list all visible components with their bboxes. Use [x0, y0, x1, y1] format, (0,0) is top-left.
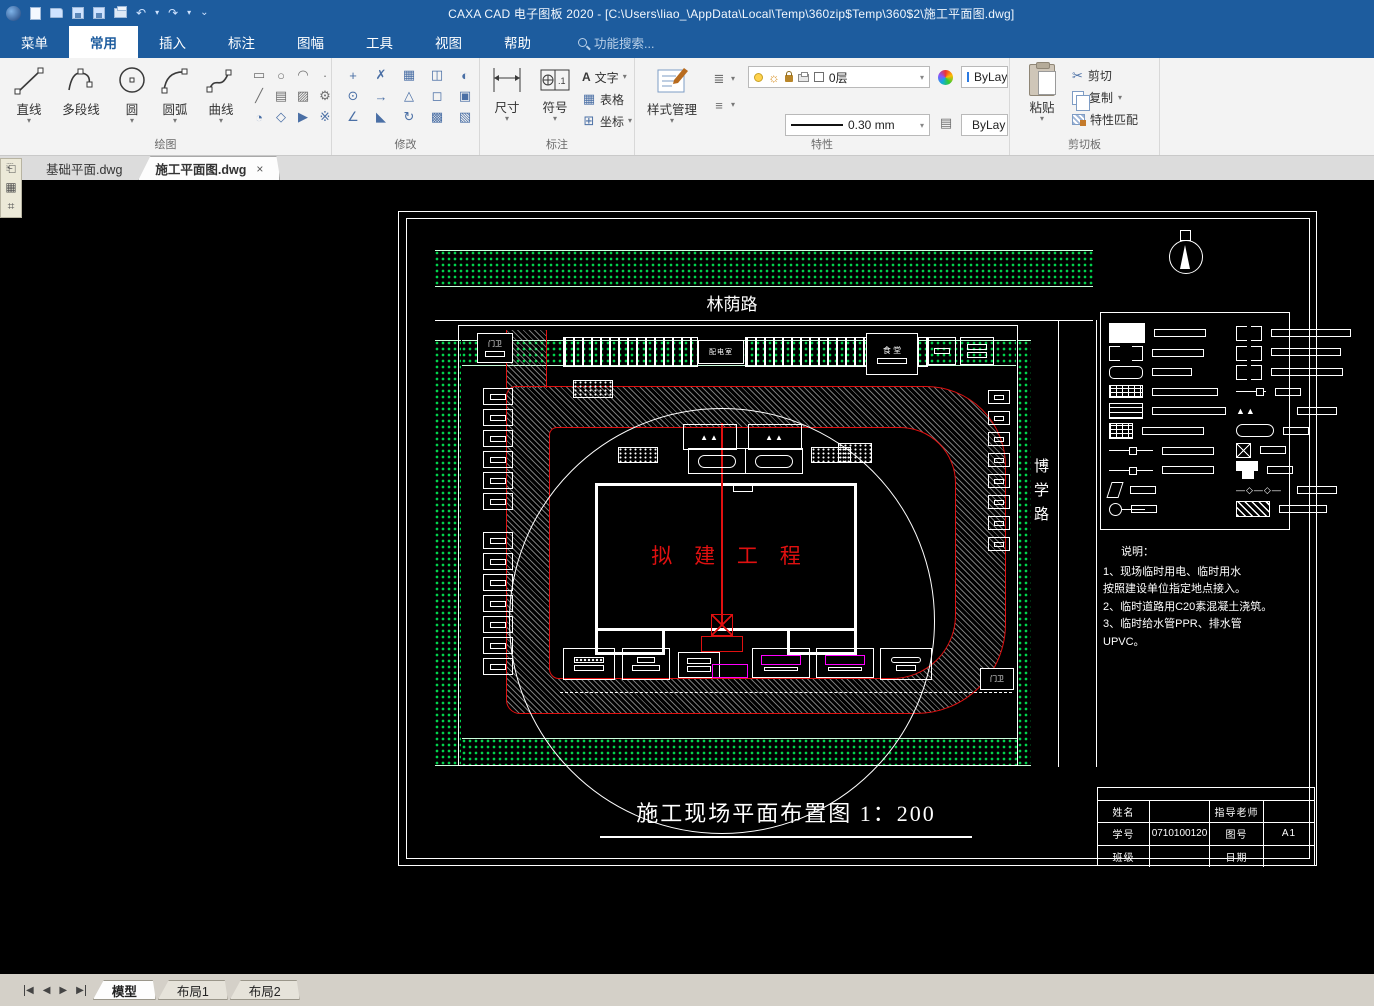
redo-icon[interactable]: ↷: [168, 7, 178, 19]
crane-base: [711, 614, 733, 636]
power-room-box: 配电室: [698, 340, 744, 364]
tb-sid-label: 学号: [1098, 823, 1150, 845]
color-picker-icon[interactable]: [938, 70, 953, 85]
quick-access-toolbar: ↶ ▾ ↷ ▾ ⌄: [0, 6, 209, 21]
aggregate-pile: [618, 447, 658, 463]
east-temp-boxes: [988, 390, 1010, 558]
menu-tab-tufu[interactable]: 图幅: [276, 26, 345, 58]
arc-tool-button[interactable]: 圆弧▾: [152, 64, 198, 124]
modify-tool-icon[interactable]: ↻: [398, 108, 420, 126]
draw-tool-icon[interactable]: ╱: [248, 87, 270, 105]
bylayer-color-icon: [967, 72, 969, 82]
hopper-box: ▲▲: [748, 424, 802, 450]
layer-combo[interactable]: ☼ 0层 ▾: [748, 66, 930, 88]
customize-toolbar-icon[interactable]: ⌄: [200, 8, 208, 18]
group-label-clipboard: 剪切板: [1010, 136, 1159, 152]
notes-title: 说明：: [1103, 544, 1313, 562]
tb-sid-value: 0710100120: [1150, 823, 1210, 845]
save-icon[interactable]: [72, 7, 84, 19]
note-line: 3、临时给水管PPR、排水管: [1103, 616, 1313, 634]
modify-tool-icon[interactable]: ▧: [454, 108, 476, 126]
svg-text:.1: .1: [558, 76, 566, 86]
temp-room: [483, 595, 513, 612]
layer-on-icon: [754, 73, 763, 82]
draw-tool-icon[interactable]: ◠: [292, 66, 314, 84]
line-tool-button[interactable]: 直线▾: [2, 64, 56, 124]
drawing-canvas[interactable]: 林荫路 博学路 拟 建 工 程 配电室 食 堂 门卫 ▲▲ ▲▲: [0, 180, 1374, 974]
cut-icon: ✂: [1072, 68, 1083, 84]
spline-tool-button[interactable]: 曲线▾: [198, 64, 244, 124]
polyline-tool-button[interactable]: 多段线: [50, 64, 112, 118]
legend-column-left: [1109, 323, 1226, 519]
coordinate-tool-button[interactable]: ⊞坐标▾: [582, 112, 632, 130]
temp-room: [483, 532, 513, 549]
temp-room: [483, 409, 513, 426]
ribbon-group-clipboard: 粘贴▾ ✂剪切 复制▾ 特性匹配 剪切板: [1010, 58, 1160, 155]
draw-tool-icon[interactable]: ▭: [248, 66, 270, 84]
legend-column-right: ▲▲ —◇—◇—: [1236, 323, 1351, 519]
canteen-box: 食 堂: [866, 333, 918, 375]
tb-name-label: 姓名: [1098, 801, 1150, 823]
copy-button[interactable]: 复制▾: [1072, 88, 1138, 107]
tb-advisor-label: 指导老师: [1210, 801, 1264, 823]
title-bar: ↶ ▾ ↷ ▾ ⌄ CAXA CAD 电子图板 2020 - [C:\Users…: [0, 0, 1374, 26]
note-line: 按照建设单位指定地点接入。: [1103, 581, 1313, 599]
modify-tool-icon[interactable]: ◐: [454, 66, 476, 84]
tb-fig-value: A1: [1264, 823, 1314, 845]
layer-sun-icon: ☼: [768, 70, 780, 85]
draw-tool-icon[interactable]: ▤: [270, 87, 292, 105]
tb-date-value: [1264, 846, 1314, 867]
circle-tool-button[interactable]: 圆▾: [112, 64, 152, 124]
draw-tool-icon[interactable]: ▶: [292, 108, 314, 126]
draw-tool-icon[interactable]: ◔: [248, 108, 270, 126]
ribbon: 直线▾ 多段线 圆▾ 圆弧▾ 曲线▾ ▭ ○ ◠ · ╱ ▤ ▨ ⚙ ◔ ◇: [0, 58, 1374, 156]
layer-lock-icon: [785, 75, 793, 82]
tb-class-value: [1150, 846, 1210, 867]
modify-tool-icon[interactable]: ▩: [426, 108, 448, 126]
tb-name-value: [1150, 801, 1210, 823]
close-tab-icon[interactable]: ×: [256, 162, 263, 176]
aggregate-pile: [838, 443, 872, 463]
sheet-last-icon[interactable]: ▶: [76, 985, 86, 996]
linestyle-tool-icon[interactable]: ≡: [711, 96, 727, 114]
group-label-annotate: 标注: [480, 136, 634, 152]
temp-room: [483, 493, 513, 510]
drawing-caption: 施工现场平面布置图 1：200: [600, 796, 972, 838]
save-as-icon[interactable]: [93, 7, 105, 19]
paste-button[interactable]: 粘贴▾: [1018, 64, 1066, 122]
modify-tool-icon[interactable]: ◻: [426, 87, 448, 105]
modify-tool-icon[interactable]: +: [342, 66, 364, 84]
road-label-right: 博学路: [1030, 458, 1051, 530]
facility-box: [928, 337, 956, 365]
linewidth-combo[interactable]: 0.30 mm ▾: [785, 114, 930, 136]
building-detail-rect: [733, 485, 753, 492]
status-bar: ◀ ◀ ▶ ▶ 模型 布局1 布局2: [0, 974, 1374, 1006]
east-road-line-1: [1058, 320, 1059, 767]
match-properties-button[interactable]: 特性匹配: [1072, 110, 1138, 129]
guard-house-bottom: 门卫: [980, 668, 1014, 690]
modify-tool-icon[interactable]: ⊙: [342, 87, 364, 105]
aggregate-pile: [573, 380, 613, 398]
notes-block: 说明： 1、现场临时用电、临时用水 按照建设单位指定地点接入。 2、临时道路用C…: [1103, 544, 1313, 651]
green-belt-east: [1018, 340, 1031, 766]
window-title: CAXA CAD 电子图板 2020 - [C:\Users\liao_\App…: [209, 5, 1254, 22]
west-temp-rooms: [483, 388, 513, 679]
green-belt-top: [435, 250, 1093, 287]
sheet-first-icon[interactable]: ◀: [24, 985, 34, 996]
temp-room: [483, 637, 513, 654]
temp-room: [483, 451, 513, 468]
menu-bar: 菜单 常用 插入 标注 图幅 工具 视图 帮助 功能搜索...: [0, 26, 1374, 58]
sheet-tab-layout2[interactable]: 布局2: [230, 980, 300, 1000]
north-arrow: [1166, 230, 1206, 282]
symbol-button[interactable]: .1 符号▾: [532, 64, 578, 122]
temp-room: [483, 430, 513, 447]
temp-box: [988, 390, 1010, 404]
search-icon: [578, 38, 587, 47]
modify-tool-icon[interactable]: ◫: [426, 66, 448, 84]
road-label-top: 林荫路: [662, 290, 802, 315]
modify-tool-icon[interactable]: △: [398, 87, 420, 105]
temp-box: [988, 453, 1010, 467]
color-bylayer-combo[interactable]: ByLayer: [961, 66, 1008, 88]
facility-box-magenta: [752, 648, 810, 678]
facility-box: [622, 648, 670, 680]
undo-icon[interactable]: ↶: [136, 7, 146, 19]
temp-box: [988, 474, 1010, 488]
dimension-button[interactable]: 尺寸▾: [484, 64, 530, 122]
cut-button[interactable]: ✂剪切: [1072, 66, 1138, 85]
lineweight-icon[interactable]: ▤: [935, 114, 957, 132]
linetype-combo[interactable]: ByLay: [961, 114, 1008, 136]
paste-icon: [1029, 64, 1055, 96]
note-line: 1、现场临时用电、临时用水: [1103, 564, 1313, 582]
layer-tool-icon[interactable]: ≣: [711, 70, 727, 88]
facility-box-magenta: [816, 648, 874, 678]
hatch-tool-icon[interactable]: ▦: [5, 179, 16, 196]
menu-tab-gongju[interactable]: 工具: [345, 26, 414, 58]
facility-box: [563, 648, 615, 680]
modify-tool-icon[interactable]: ◣: [370, 108, 392, 126]
search-input[interactable]: 功能搜索...: [594, 33, 654, 52]
sheet-next-icon[interactable]: ▶: [59, 985, 67, 996]
facility-box: [960, 337, 994, 365]
temp-room: [483, 616, 513, 633]
note-line: 2、临时道路用C20素混凝土浇筑。: [1103, 599, 1313, 617]
menu-tab-bangzhu[interactable]: 帮助: [483, 26, 552, 58]
menu-tab-shitu[interactable]: 视图: [414, 26, 483, 58]
crane-pedestal: [701, 636, 743, 652]
group-label-properties: 特性: [635, 136, 1009, 152]
linewidth-sample-icon: [791, 124, 843, 126]
grid-tool-icon[interactable]: ⌗: [8, 198, 15, 215]
modify-tool-icon[interactable]: →: [370, 87, 392, 105]
group-label-modify: 修改: [332, 136, 479, 152]
new-file-icon[interactable]: [30, 7, 41, 20]
sheet-tab-model[interactable]: 模型: [93, 980, 156, 1000]
hopper-box: ▲▲: [683, 424, 737, 450]
sheet-prev-icon[interactable]: ◀: [43, 985, 51, 996]
tb-advisor-value: [1264, 801, 1314, 823]
tb-date-label: 日期: [1210, 846, 1264, 867]
mixer-station: [688, 448, 803, 474]
modify-tool-icon[interactable]: ∠: [342, 108, 364, 126]
draw-tool-icon[interactable]: ○: [270, 66, 292, 84]
copy-icon: [1072, 91, 1084, 105]
match-properties-icon: [1072, 114, 1085, 125]
temp-box: [988, 516, 1010, 530]
redo-dropdown-icon[interactable]: ▾: [187, 9, 191, 17]
menu-tab-changyong[interactable]: 常用: [69, 26, 138, 58]
magenta-box-small: [712, 664, 748, 678]
east-road-line-2: [1096, 320, 1097, 767]
ribbon-group-draw: 直线▾ 多段线 圆▾ 圆弧▾ 曲线▾ ▭ ○ ◠ · ╱ ▤ ▨ ⚙ ◔ ◇: [0, 58, 332, 155]
temp-room: [483, 388, 513, 405]
group-label-draw: 绘图: [0, 136, 331, 152]
sheet-tab-layout1[interactable]: 布局1: [158, 980, 228, 1000]
text-tool-button[interactable]: A文字▾: [582, 68, 632, 86]
coordinate-icon: ⊞: [582, 112, 596, 130]
legend-box: ▲▲ —◇—◇—: [1100, 312, 1290, 530]
layer-color-swatch: [814, 72, 824, 82]
table-icon: ▦: [582, 90, 596, 108]
title-block: 姓名 指导老师 学号 0710100120 图号 A1 班级 日期: [1097, 787, 1315, 866]
layer-print-icon: [798, 74, 809, 82]
modify-tool-icon[interactable]: ▣: [454, 87, 476, 105]
temp-box: [988, 411, 1010, 425]
ribbon-group-annotate: 尺寸▾ .1 符号▾ A文字▾ ▦表格 ⊞坐标▾ 标注: [480, 58, 635, 155]
temp-room: [483, 658, 513, 675]
facility-box: [880, 648, 932, 680]
menu-tab-charu[interactable]: 插入: [138, 26, 207, 58]
guard-house-top: 门卫: [477, 333, 513, 363]
modify-tool-icon[interactable]: ▦: [398, 66, 420, 84]
temp-room: [483, 553, 513, 570]
style-manager-button[interactable]: 样式管理▾: [641, 64, 703, 124]
ribbon-group-modify: + ✗ ▦ ◫ ◐ ⊙ → △ ◻ ▣ ∠ ◣ ↻ ▩ ▧ 修改: [332, 58, 480, 155]
modify-tool-icon[interactable]: ✗: [370, 66, 392, 84]
temp-box: [988, 432, 1010, 446]
tb-class-label: 班级: [1098, 846, 1150, 867]
app-logo-icon[interactable]: [6, 6, 21, 21]
table-tool-button[interactable]: ▦表格: [582, 90, 632, 108]
left-mini-toolbar: ⎗ ▦ ⌗: [0, 158, 22, 218]
material-rack-left: [563, 337, 698, 367]
temp-room: [483, 472, 513, 489]
undo-dropdown-icon[interactable]: ▾: [155, 9, 159, 17]
annotate-tool-icon[interactable]: ⎗: [6, 160, 16, 177]
open-file-icon[interactable]: [50, 8, 63, 18]
temp-box: [988, 495, 1010, 509]
site-north-line: [435, 320, 1093, 321]
tb-fig-label: 图号: [1210, 823, 1264, 845]
menu-tab-caidan[interactable]: 菜单: [0, 26, 69, 58]
temp-box: [988, 537, 1010, 551]
doc-tab-shigong[interactable]: 施工平面图.dwg×: [138, 156, 280, 180]
temp-room: [483, 574, 513, 591]
menu-tab-biaozhu[interactable]: 标注: [207, 26, 276, 58]
draw-tool-icon[interactable]: ▨: [292, 87, 314, 105]
south-fence-line: [560, 692, 1012, 693]
ribbon-group-properties: 样式管理▾ ≣▾ ≡▾ ☼ 0层 ▾ ByLayer 0.30 mm ▾ ▤: [635, 58, 1010, 155]
note-line: UPVC。: [1103, 634, 1313, 652]
draw-tool-icon[interactable]: ◇: [270, 108, 292, 126]
doc-tab-jichu[interactable]: 基础平面.dwg: [30, 156, 138, 180]
print-icon[interactable]: [114, 8, 127, 18]
document-tab-strip: 基础平面.dwg 施工平面图.dwg×: [0, 156, 1374, 180]
title-block-top: [1098, 788, 1314, 801]
building-label: 拟 建 工 程: [630, 540, 830, 570]
